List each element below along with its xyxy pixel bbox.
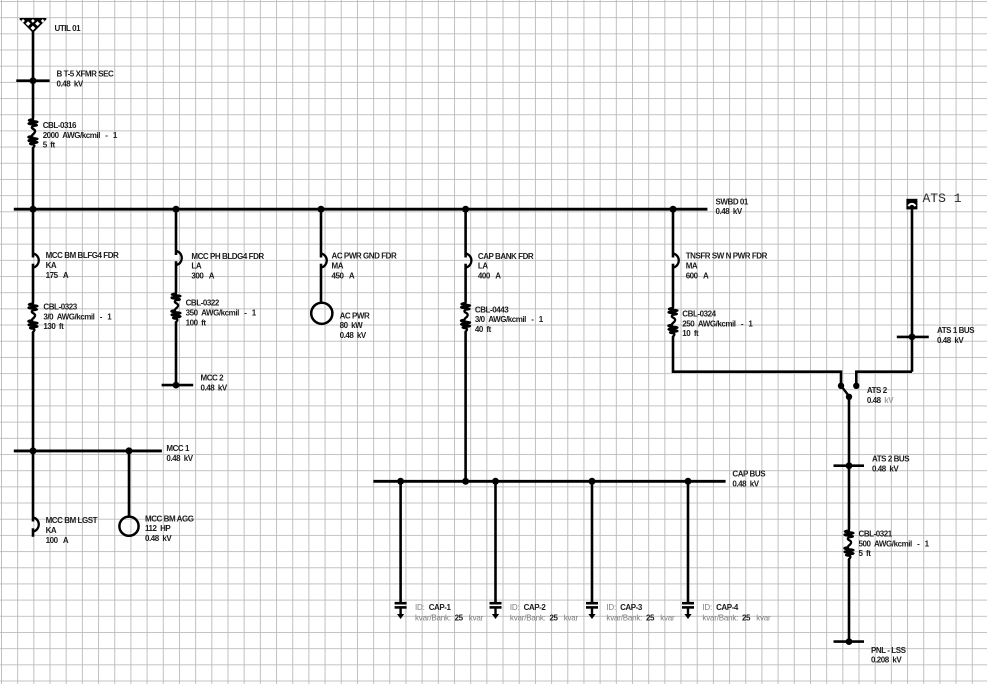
svg-text:0.48 kV: 0.48 kV (201, 383, 228, 392)
svg-text:350 AWG/kcmil - 1: 350 AWG/kcmil - 1 (186, 309, 257, 318)
svg-text:3/0 AWG/kcmil - 1: 3/0 AWG/kcmil - 1 (43, 312, 112, 321)
svg-text:500 AWG/kcmil - 1: 500 AWG/kcmil - 1 (859, 539, 930, 548)
svg-text:40 ft: 40 ft (475, 325, 492, 334)
svg-text:CBL-0443: CBL-0443 (475, 305, 509, 314)
svg-text:100 ft: 100 ft (186, 319, 207, 328)
svg-text:0.208 kV: 0.208 kV (871, 656, 902, 665)
svg-text:SWBD 01: SWBD 01 (716, 197, 749, 206)
svg-text:ATS 2: ATS 2 (867, 386, 888, 395)
svg-text:kvar/Bank:: kvar/Bank: (606, 613, 642, 622)
svg-text:kvar: kvar (469, 613, 484, 622)
svg-text:25: 25 (455, 613, 464, 622)
svg-text:MCC PH BLDG4 FDR: MCC PH BLDG4 FDR (191, 252, 264, 261)
svg-text:ID:: ID: (606, 603, 616, 612)
svg-text:130 ft: 130 ft (43, 322, 64, 331)
svg-text:5 ft: 5 ft (43, 141, 56, 150)
svg-text:ATS 1: ATS 1 (923, 191, 962, 206)
svg-text:CBL-0324: CBL-0324 (682, 309, 716, 318)
svg-text:AC PWR: AC PWR (340, 311, 370, 320)
svg-text:CAP-4: CAP-4 (716, 603, 739, 612)
svg-text:CAP BUS: CAP BUS (732, 469, 766, 478)
svg-text:300 A: 300 A (191, 272, 214, 281)
svg-text:100 A: 100 A (46, 536, 69, 545)
svg-text:80 kW: 80 kW (340, 321, 364, 330)
svg-text:CBL-0316: CBL-0316 (43, 121, 77, 130)
svg-text:600 A: 600 A (686, 271, 709, 280)
svg-text:25: 25 (550, 613, 559, 622)
svg-text:UTIL 01: UTIL 01 (55, 24, 82, 33)
svg-text:0.48 kV: 0.48 kV (872, 464, 899, 473)
svg-text:MA: MA (686, 261, 698, 270)
svg-text:250 AWG/kcmil - 1: 250 AWG/kcmil - 1 (682, 319, 753, 328)
svg-text:kvar/Bank:: kvar/Bank: (415, 613, 451, 622)
svg-text:ID:: ID: (415, 603, 425, 612)
svg-text:0.48 kV: 0.48 kV (732, 479, 759, 488)
svg-text:MCC 2: MCC 2 (201, 373, 225, 382)
svg-text:kvar: kvar (564, 613, 579, 622)
svg-text:0.48 kV: 0.48 kV (166, 454, 193, 463)
svg-text:0.48 kV: 0.48 kV (937, 336, 964, 345)
svg-text:MCC BM LGST: MCC BM LGST (46, 516, 98, 525)
svg-text:CBL-0321: CBL-0321 (859, 529, 893, 538)
svg-text:MCC BM BLFG4 FDR: MCC BM BLFG4 FDR (46, 251, 119, 260)
svg-text:450 A: 450 A (332, 271, 355, 280)
svg-text:LA: LA (191, 262, 201, 271)
svg-text:0.48 kV: 0.48 kV (340, 331, 367, 340)
svg-text:0.48 kV: 0.48 kV (57, 80, 84, 89)
svg-text:0.48 kV: 0.48 kV (867, 396, 894, 405)
svg-text:0.48 kV: 0.48 kV (145, 534, 172, 543)
svg-text:CAP-2: CAP-2 (524, 603, 547, 612)
svg-text:ID:: ID: (702, 603, 712, 612)
svg-text:KA: KA (46, 261, 57, 270)
svg-text:112 HP: 112 HP (145, 524, 171, 533)
svg-text:3/0 AWG/kcmil - 1: 3/0 AWG/kcmil - 1 (475, 315, 544, 324)
svg-text:CAP BANK FDR: CAP BANK FDR (478, 252, 534, 261)
svg-text:kvar/Bank:: kvar/Bank: (702, 613, 738, 622)
svg-text:175 A: 175 A (46, 271, 69, 280)
svg-text:ATS 1 BUS: ATS 1 BUS (937, 326, 975, 335)
svg-text:25: 25 (742, 613, 751, 622)
svg-text:kvar: kvar (660, 613, 675, 622)
svg-text:0.48 kV: 0.48 kV (716, 207, 743, 216)
svg-text:TNSFR SW N PWR FDR: TNSFR SW N PWR FDR (686, 252, 768, 261)
svg-text:400 A: 400 A (478, 272, 501, 281)
svg-text:AC PWR GND FDR: AC PWR GND FDR (332, 252, 397, 261)
svg-text:PNL - LSS: PNL - LSS (871, 646, 907, 655)
svg-text:2000 AWG/kcmil - 1: 2000 AWG/kcmil - 1 (43, 131, 118, 140)
svg-text:MCC 1: MCC 1 (166, 444, 190, 453)
svg-text:ID:: ID: (510, 603, 520, 612)
svg-text:CAP-3: CAP-3 (620, 603, 643, 612)
svg-text:CBL-0323: CBL-0323 (43, 302, 77, 311)
svg-text:10 ft: 10 ft (682, 329, 699, 338)
svg-text:LA: LA (478, 262, 488, 271)
svg-text:MA: MA (332, 261, 344, 270)
svg-text:CAP-1: CAP-1 (429, 603, 452, 612)
svg-text:ATS 2 BUS: ATS 2 BUS (872, 454, 910, 463)
svg-text:KA: KA (46, 526, 57, 535)
svg-text:MCC BM AGG: MCC BM AGG (145, 514, 194, 523)
svg-text:kvar/Bank:: kvar/Bank: (510, 613, 546, 622)
svg-text:B T-5 XFMR SEC: B T-5 XFMR SEC (57, 70, 114, 79)
svg-text:25: 25 (646, 613, 655, 622)
svg-text:5 ft: 5 ft (859, 549, 872, 558)
svg-text:CBL-0322: CBL-0322 (186, 299, 220, 308)
svg-text:kvar: kvar (756, 613, 771, 622)
